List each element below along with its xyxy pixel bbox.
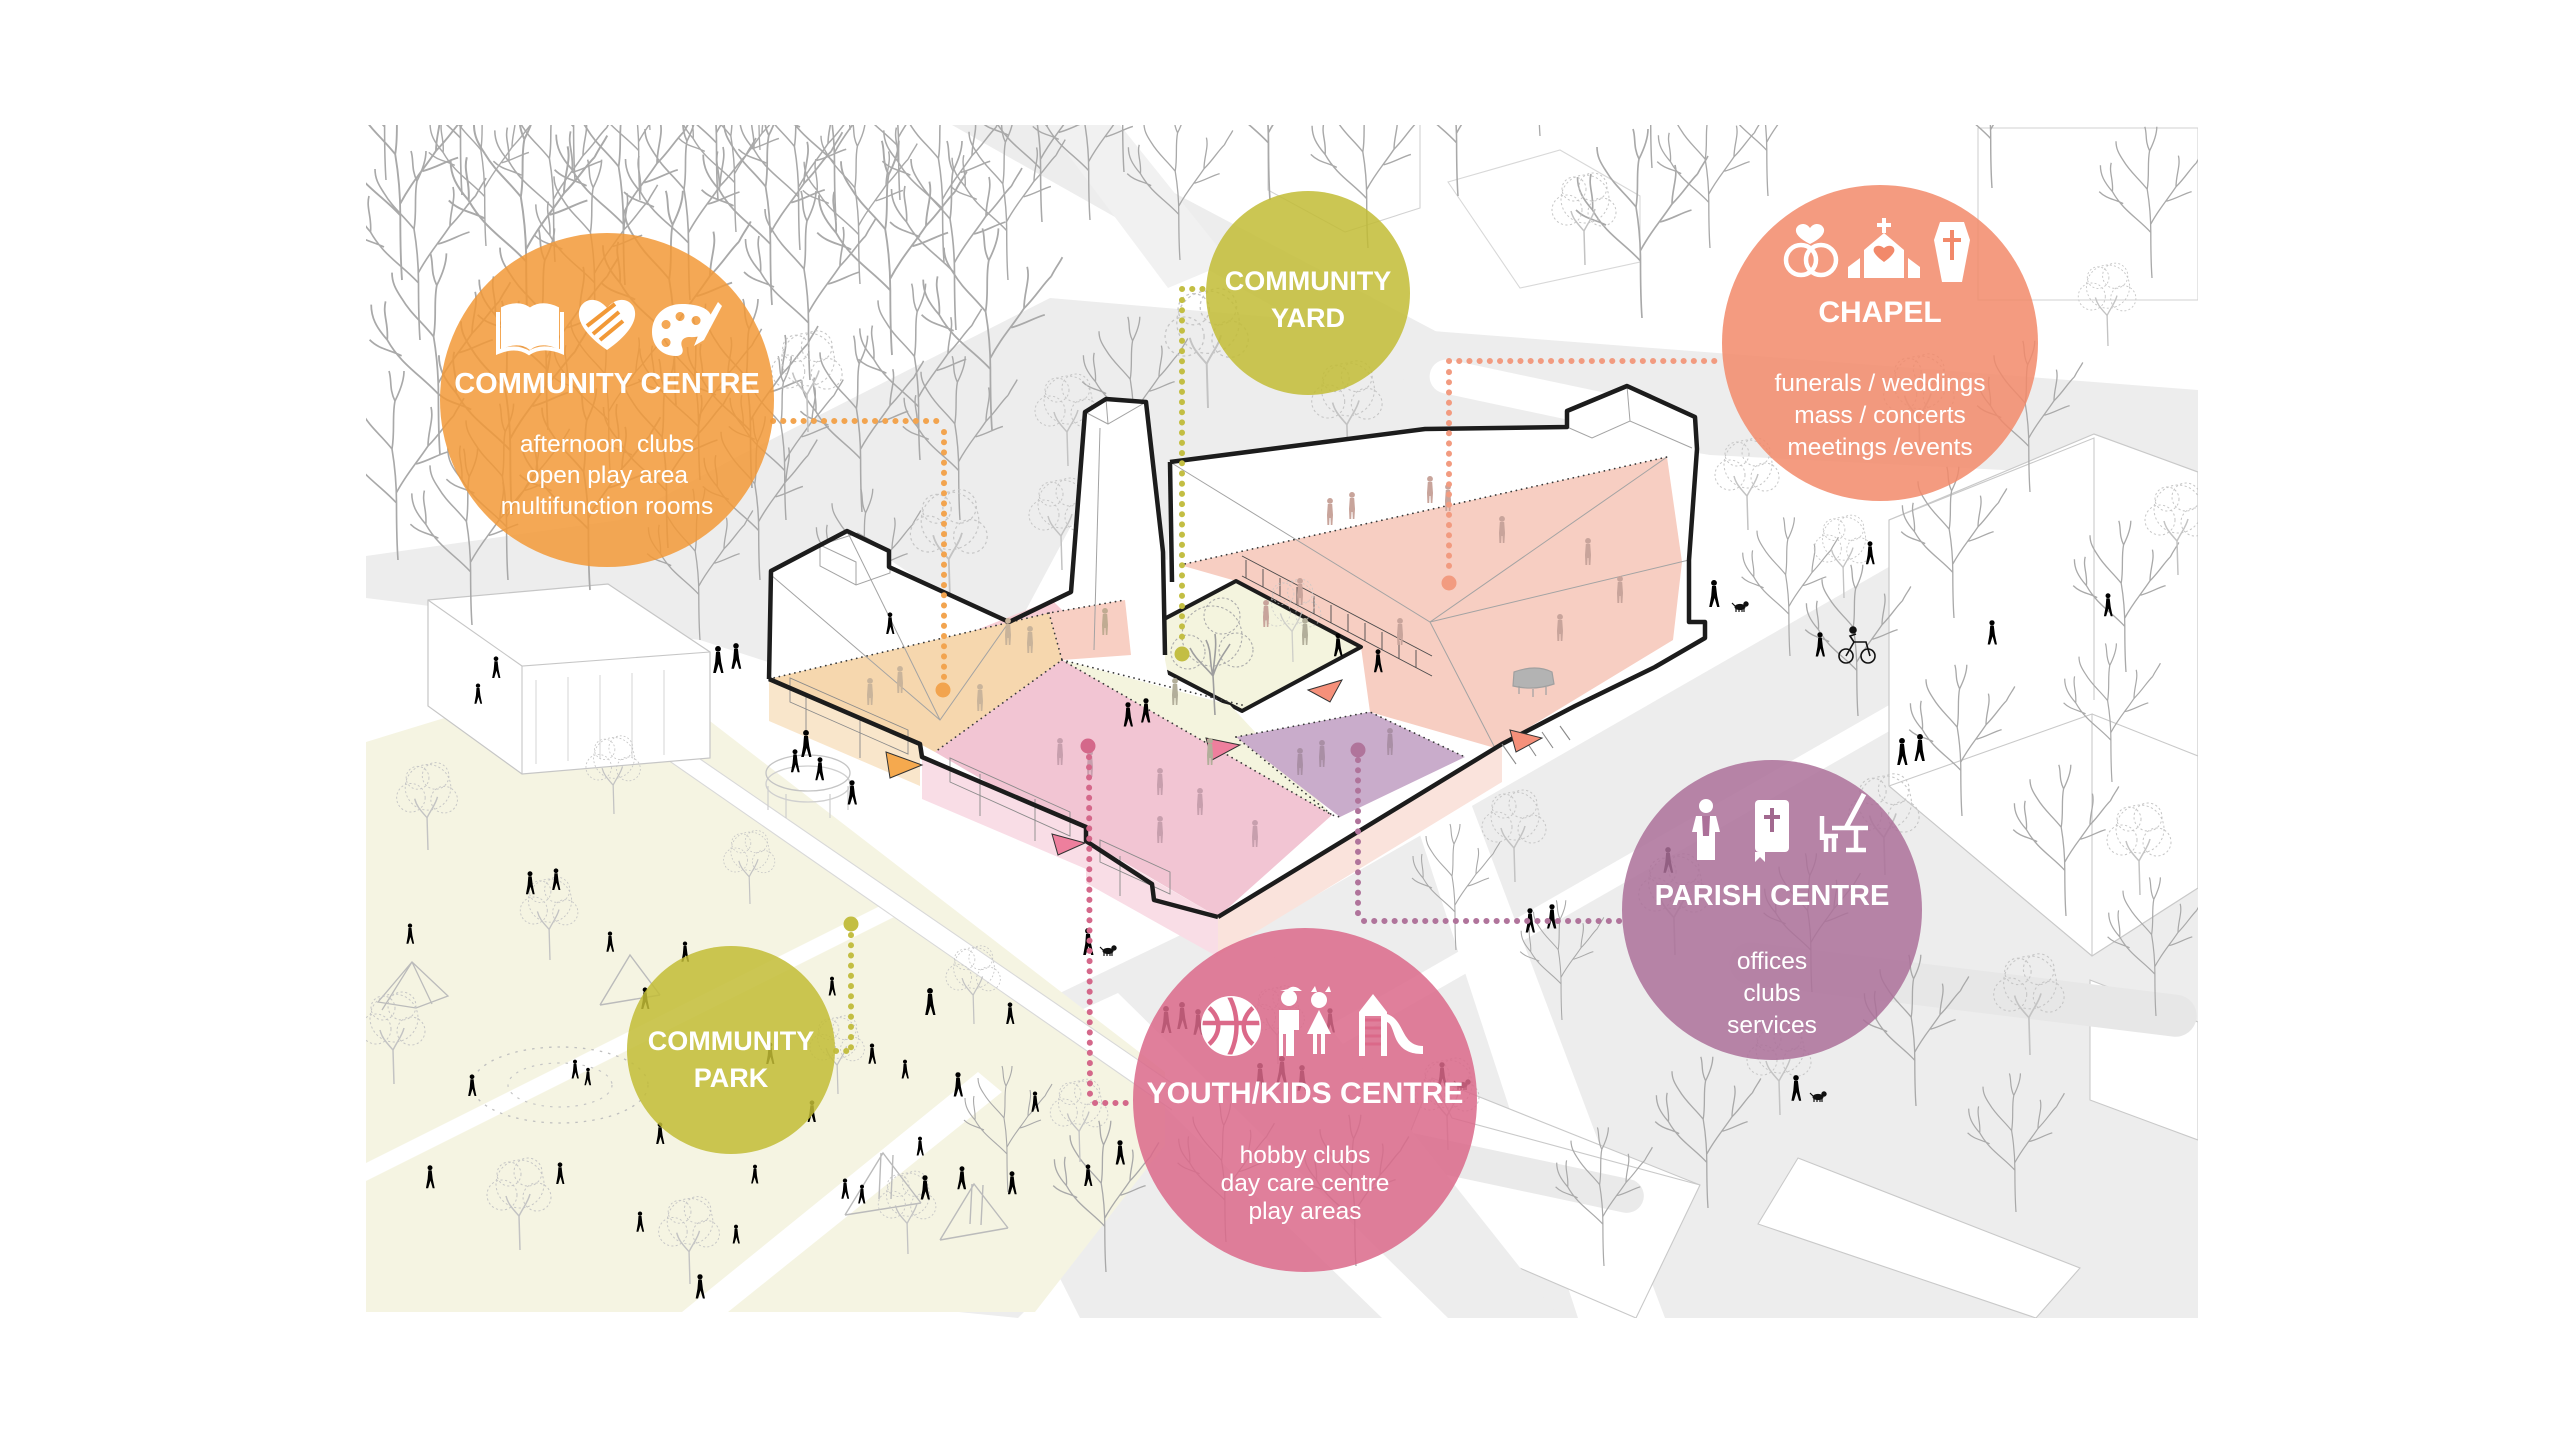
svg-text:mass / concerts: mass / concerts <box>1794 402 1966 429</box>
svg-text:open play area: open play area <box>526 462 688 489</box>
svg-text:multifunction rooms: multifunction rooms <box>501 493 713 520</box>
svg-text:services: services <box>1727 1012 1817 1039</box>
svg-text:PARISH CENTRE: PARISH CENTRE <box>1655 880 1890 912</box>
svg-text:funerals / weddings: funerals / weddings <box>1774 370 1985 397</box>
svg-text:meetings /events: meetings /events <box>1787 434 1972 461</box>
svg-text:COMMUNITY CENTRE: COMMUNITY CENTRE <box>454 368 760 400</box>
svg-text:COMMUNITY: COMMUNITY <box>1225 266 1391 296</box>
svg-text:COMMUNITY: COMMUNITY <box>648 1026 814 1056</box>
svg-text:clubs: clubs <box>1743 980 1800 1007</box>
svg-text:YARD: YARD <box>1271 303 1345 333</box>
svg-text:PARK: PARK <box>694 1063 769 1093</box>
svg-text:afternoon clubs: afternoon clubs <box>520 431 694 458</box>
svg-text:day care centre: day care centre <box>1221 1170 1390 1197</box>
svg-text:YOUTH/KIDS CENTRE: YOUTH/KIDS CENTRE <box>1147 1077 1464 1110</box>
svg-text:CHAPEL: CHAPEL <box>1818 296 1941 329</box>
svg-text:offices: offices <box>1737 948 1807 975</box>
svg-text:hobby clubs: hobby clubs <box>1240 1142 1371 1169</box>
svg-text:play areas: play areas <box>1248 1198 1361 1225</box>
